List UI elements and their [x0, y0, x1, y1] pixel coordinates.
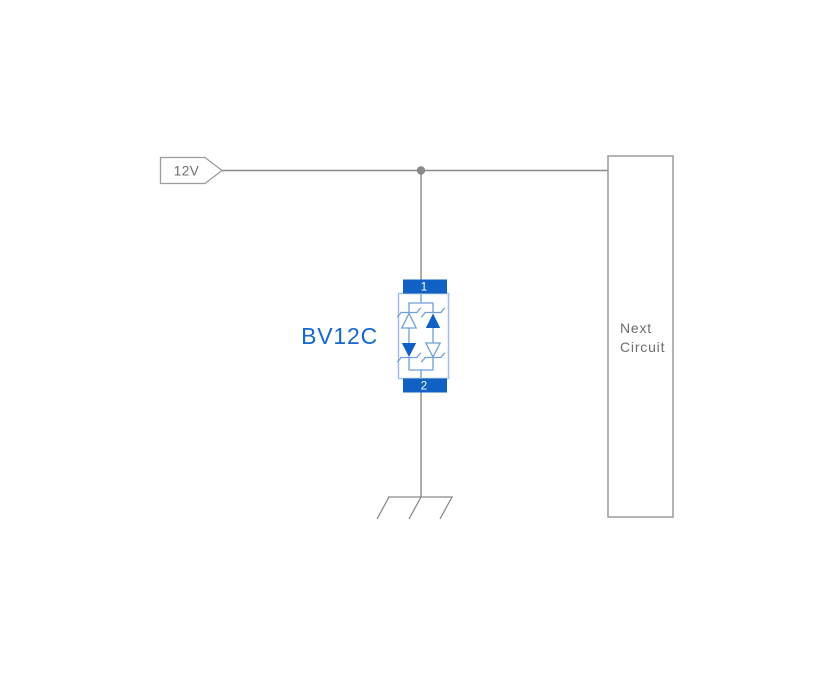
ground-icon: [377, 497, 453, 519]
schematic-page: 12V Next Circuit: [0, 0, 832, 675]
component-label: BV12C: [301, 323, 378, 349]
next-circuit-label-line2: Circuit: [620, 339, 665, 355]
ground-hatch: [409, 497, 421, 519]
component-label-group: BV12C: [301, 323, 378, 349]
power-net-label: 12V: [174, 164, 200, 179]
pin2-label: 2: [421, 381, 427, 393]
next-circuit-label-line1: Next: [620, 320, 652, 336]
pin1-label: 1: [421, 282, 427, 294]
component-body: [399, 294, 449, 379]
ground-hatch: [377, 497, 389, 519]
next-circuit-box: [608, 156, 673, 517]
schematic-canvas: 12V Next Circuit: [0, 0, 832, 675]
tvs-component: 1 2: [398, 280, 449, 393]
junction-dot: [417, 166, 425, 174]
ground-hatch: [440, 497, 452, 519]
